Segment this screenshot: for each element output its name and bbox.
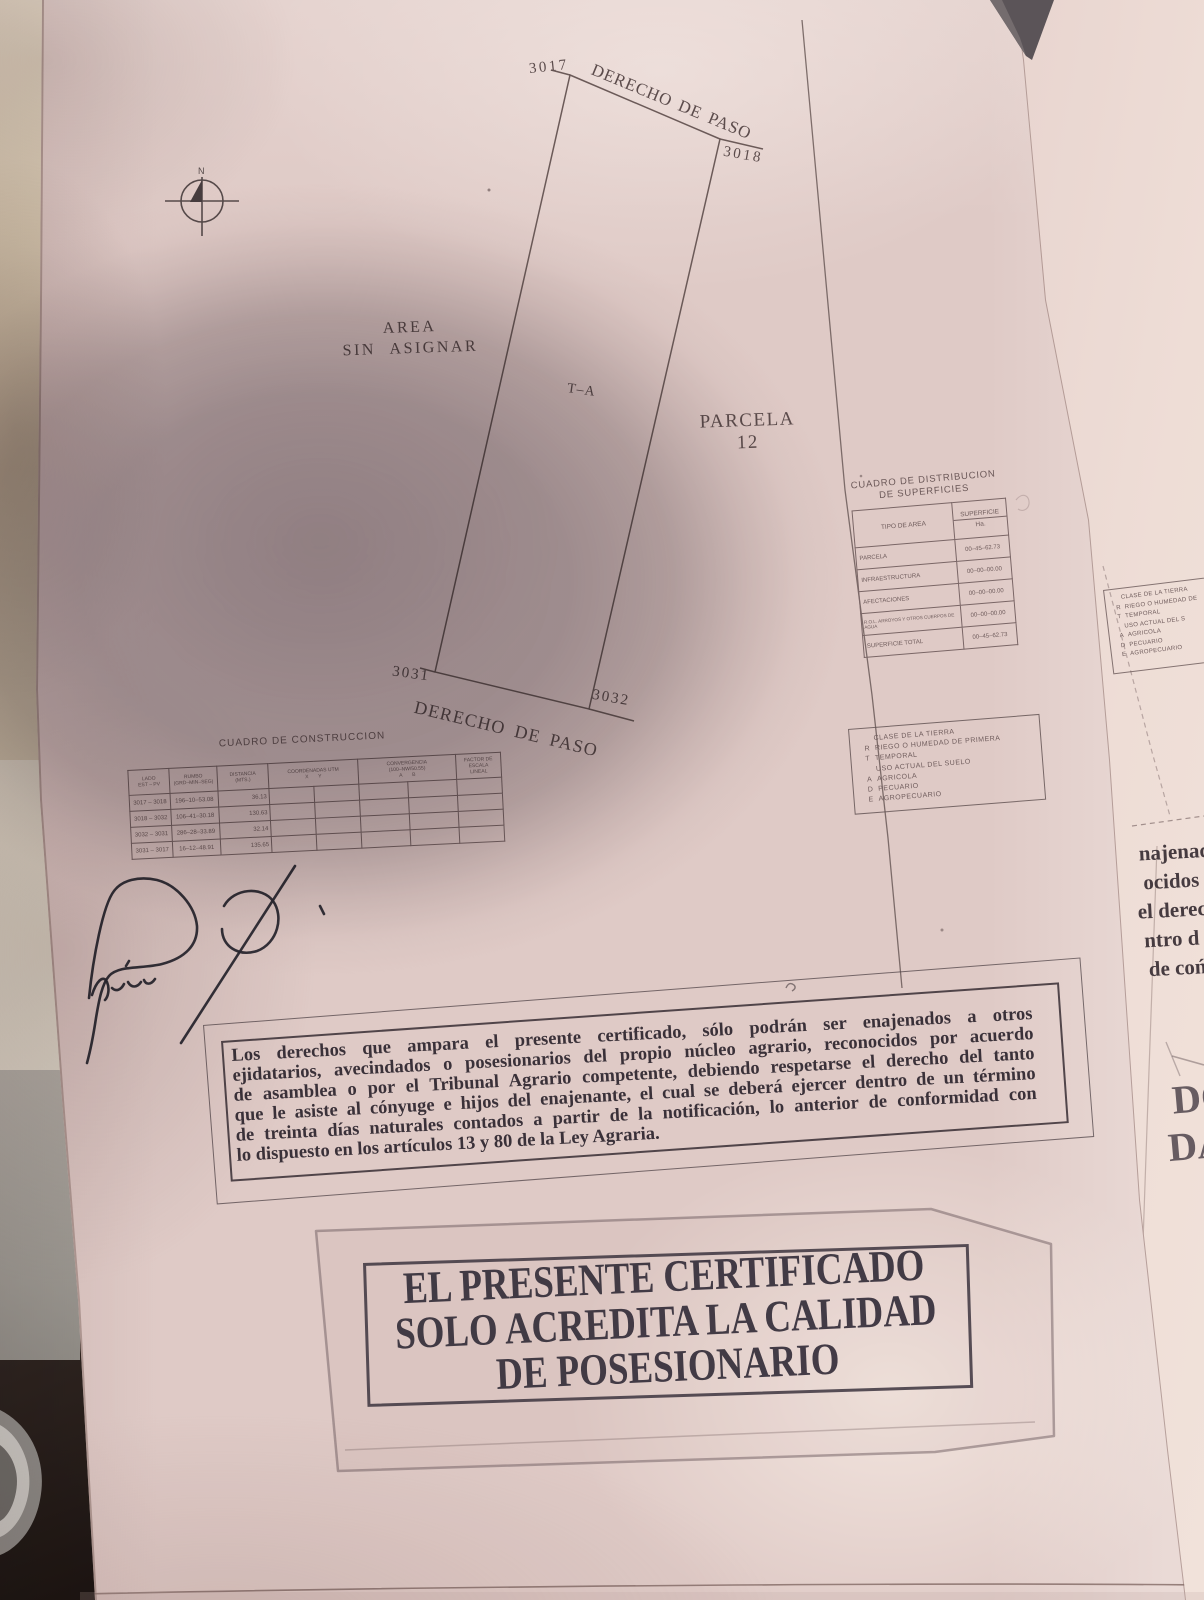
svg-text:N: N <box>198 166 205 176</box>
